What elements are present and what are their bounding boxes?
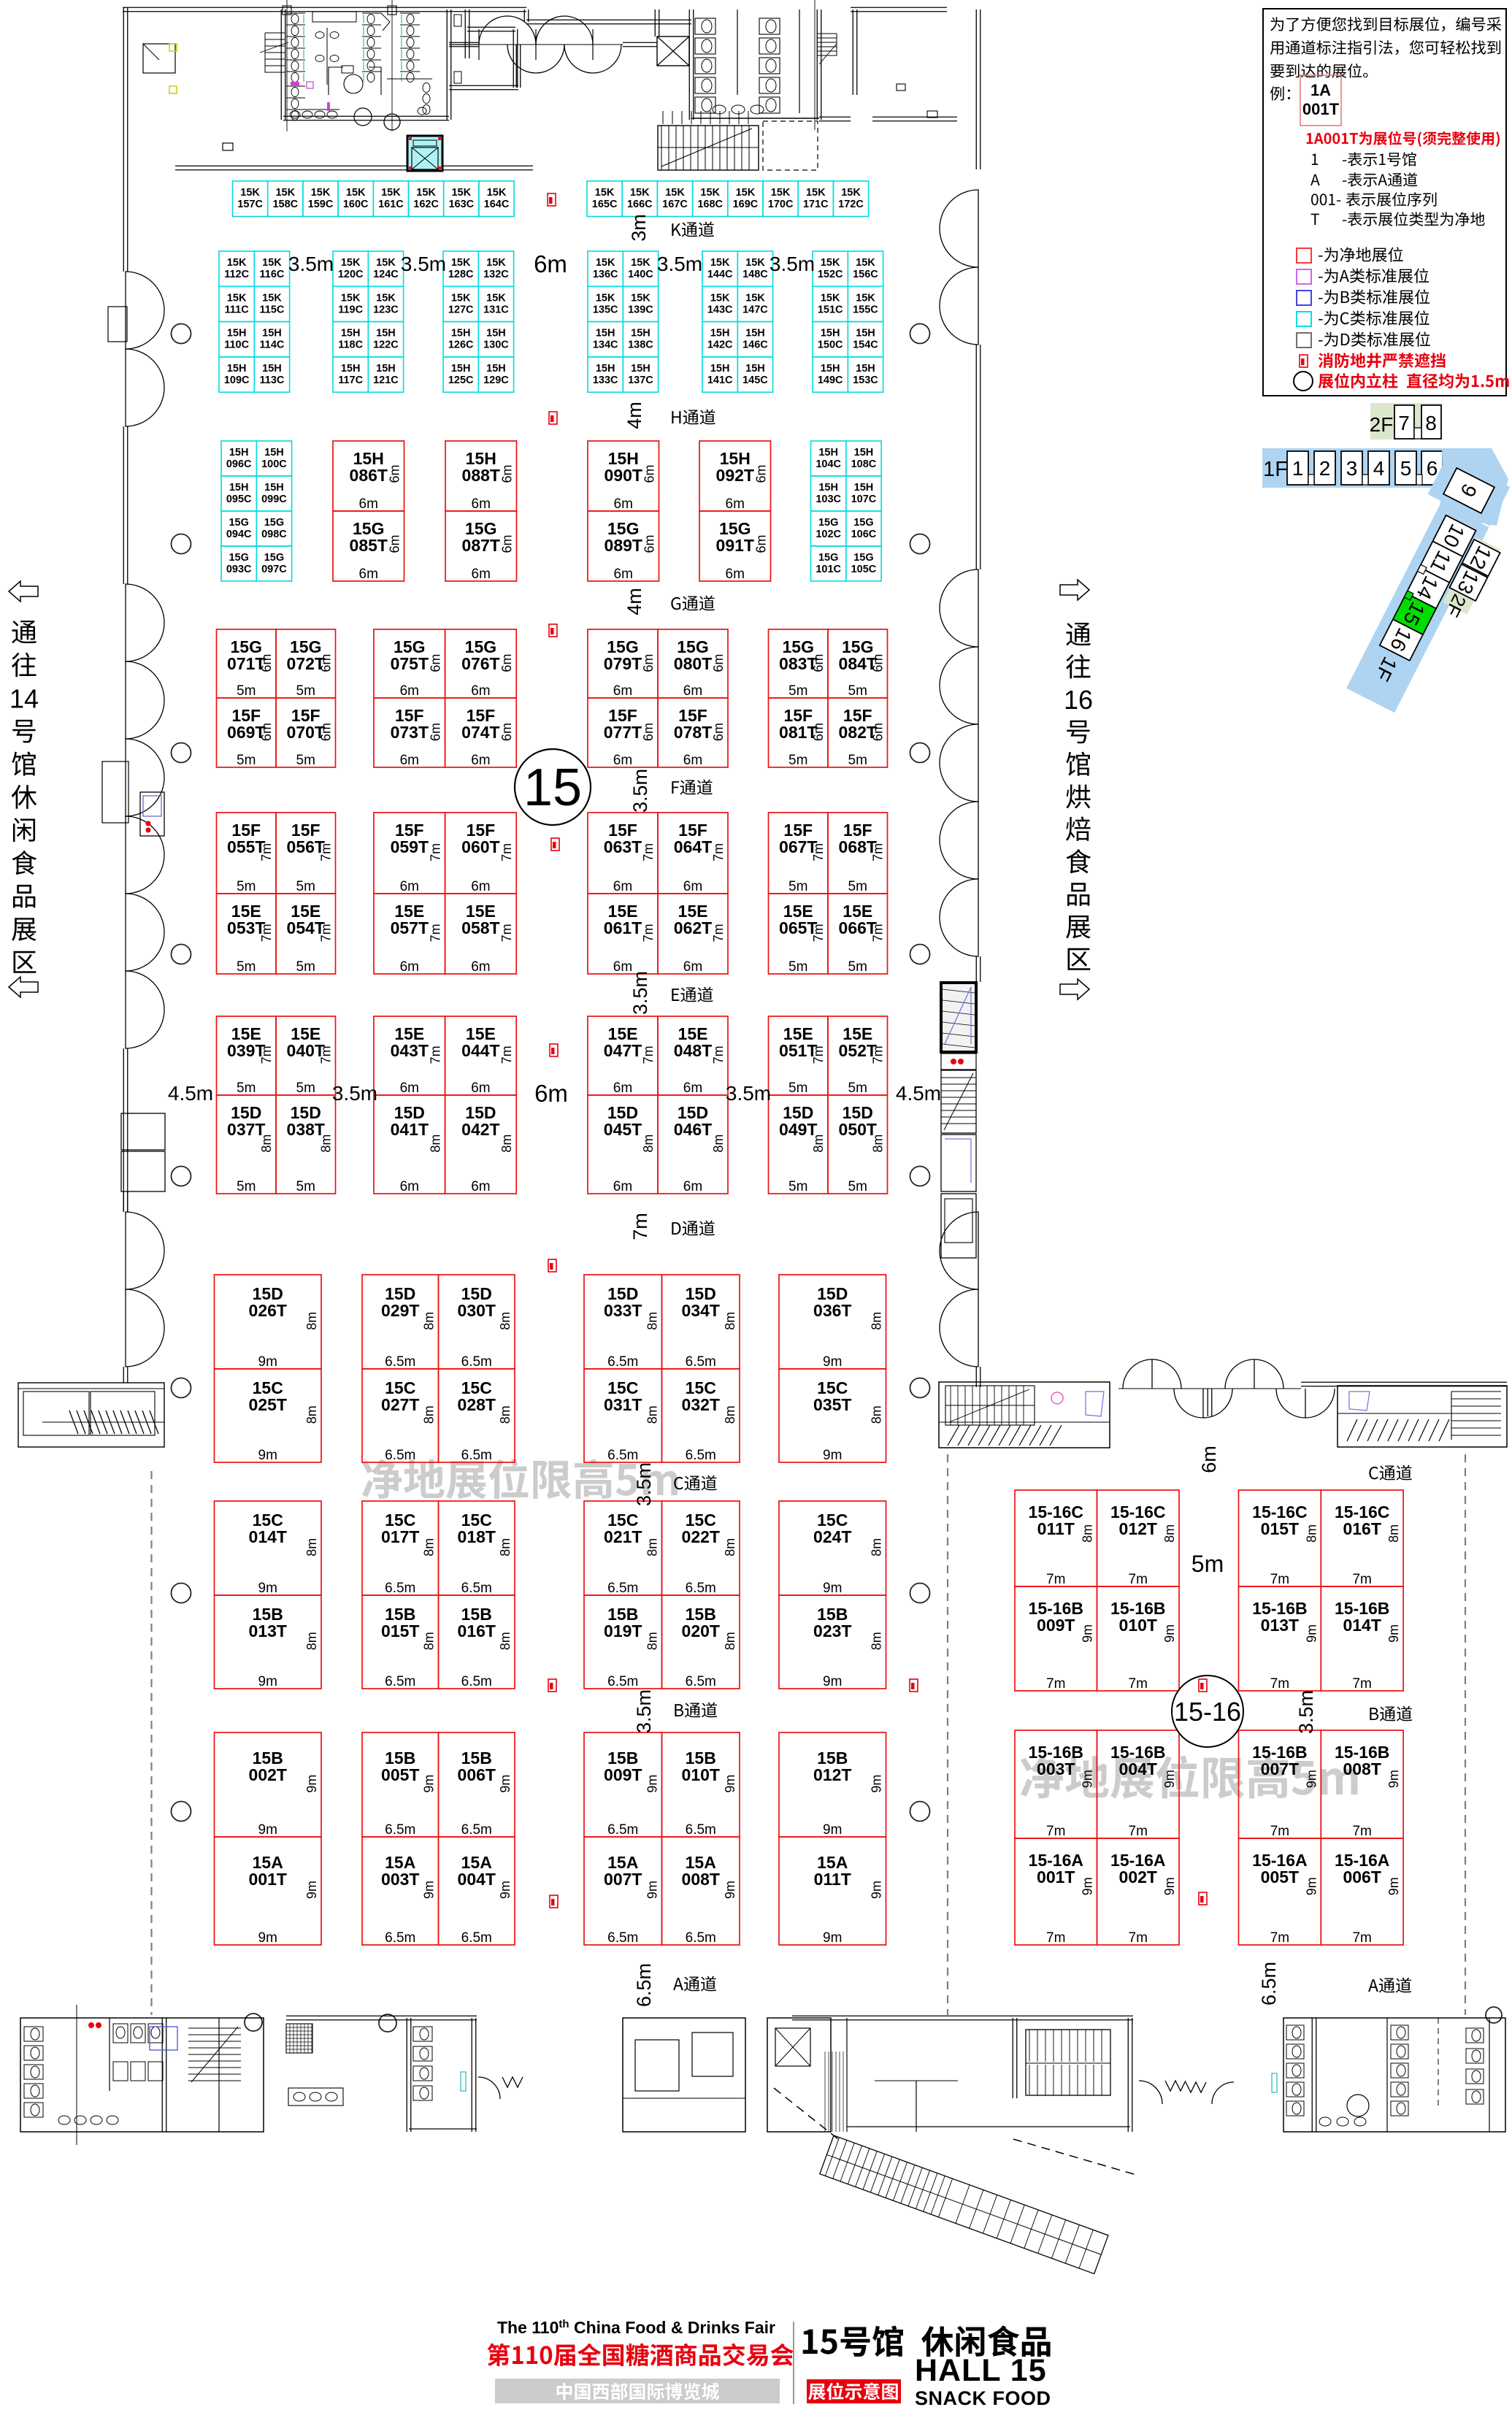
svg-text:9m: 9m [1081,1624,1095,1643]
svg-text:6m: 6m [472,496,491,512]
svg-text:019T: 019T [604,1621,642,1640]
svg-text:6m: 6m [1198,1446,1220,1473]
svg-text:5m: 5m [237,683,256,699]
svg-text:15H: 15H [451,363,471,375]
svg-text:7m: 7m [319,843,334,861]
svg-text:7m: 7m [1129,1572,1148,1587]
svg-text:113C: 113C [260,375,285,386]
svg-text:8m: 8m [870,1538,884,1557]
svg-text:086T: 086T [350,466,388,485]
svg-text:158C: 158C [272,199,298,210]
svg-text:5m: 5m [788,753,807,768]
svg-text:15H: 15H [227,328,247,339]
svg-text:15H: 15H [745,363,765,375]
svg-text:1A: 1A [1310,81,1331,99]
svg-text:15K: 15K [262,292,282,304]
svg-text:4m: 4m [623,588,645,615]
svg-text:142C: 142C [707,339,733,351]
svg-text:018T: 018T [458,1527,496,1546]
svg-text:16: 16 [1064,685,1093,715]
svg-text:117C: 117C [338,375,363,386]
svg-text:9m: 9m [498,1881,513,1899]
svg-text:15H: 15H [854,482,874,494]
svg-text:8m: 8m [645,1632,660,1650]
svg-text:7m: 7m [429,843,443,861]
svg-text:014T: 014T [1343,1616,1381,1635]
svg-text:6m: 6m [613,1179,632,1194]
svg-text:6m: 6m [642,534,657,553]
svg-text:148C: 148C [742,269,768,280]
svg-text:15K: 15K [710,257,730,269]
svg-text:15: 15 [523,759,582,817]
svg-text:6m: 6m [319,723,334,741]
svg-text:6m: 6m [726,496,745,512]
svg-text:6.5m: 6.5m [607,1930,638,1946]
svg-text:8m: 8m [304,1632,319,1650]
svg-text:6m: 6m [400,683,419,699]
svg-text:137C: 137C [628,375,653,386]
svg-text:8m: 8m [304,1405,319,1424]
svg-text:145C: 145C [742,375,768,386]
svg-text:6m: 6m [388,534,402,553]
svg-text:002T: 002T [1119,1868,1157,1887]
svg-text:15K: 15K [596,292,615,304]
svg-text:9m: 9m [1386,1877,1401,1895]
svg-text:093C: 093C [226,564,252,575]
svg-text:9m: 9m [258,1354,277,1370]
svg-text:012T: 012T [1119,1519,1157,1538]
svg-text:6m: 6m [641,723,656,741]
svg-text:3.5m: 3.5m [629,769,651,813]
svg-text:9m: 9m [823,1354,842,1370]
svg-text:15H: 15H [264,447,284,458]
svg-text:9m: 9m [1304,1624,1319,1643]
svg-text:6m: 6m [811,723,826,741]
svg-text:15H: 15H [262,328,282,339]
svg-text:3.5m: 3.5m [726,1082,771,1105]
svg-text:134C: 134C [593,339,618,351]
svg-text:5m: 5m [848,683,867,699]
svg-text:6m: 6m [754,534,769,553]
svg-text:15K: 15K [821,257,840,269]
svg-text:14: 14 [9,683,39,713]
svg-text:5m: 5m [848,1179,867,1194]
svg-text:9m: 9m [823,1448,842,1463]
svg-text:6m: 6m [683,1081,702,1096]
svg-text:6.5m: 6.5m [461,1930,492,1946]
svg-text:6m: 6m [683,753,702,768]
svg-text:6m: 6m [499,654,514,672]
svg-text:6.5m: 6.5m [633,1963,655,2007]
svg-text:7m: 7m [629,1213,651,1240]
svg-text:15K: 15K [381,187,401,199]
svg-text:041T: 041T [391,1120,429,1139]
svg-text:6.5m: 6.5m [461,1822,492,1838]
svg-text:7m: 7m [1046,1676,1065,1692]
svg-text:7m: 7m [811,1045,826,1064]
svg-text:101C: 101C [816,564,841,575]
svg-text:7m: 7m [711,843,726,861]
svg-text:9m: 9m [645,1881,660,1899]
svg-text:8m: 8m [723,1405,737,1424]
svg-text:6m: 6m [534,250,567,277]
svg-text:8m: 8m [723,1312,737,1330]
svg-text:9m: 9m [1162,1877,1177,1895]
svg-text:7m: 7m [429,1045,443,1064]
svg-text:15H: 15H [264,482,284,494]
svg-text:7m: 7m [871,1045,886,1064]
svg-text:043T: 043T [391,1041,429,1060]
svg-text:8m: 8m [1386,1524,1401,1543]
svg-text:008T: 008T [682,1870,720,1889]
svg-text:146C: 146C [742,339,768,351]
svg-text:9m: 9m [723,1881,737,1899]
svg-text:7m: 7m [259,843,274,861]
svg-text:009T: 009T [604,1765,642,1784]
svg-text:8m: 8m [1304,1524,1319,1543]
svg-text:7m: 7m [1270,1676,1289,1692]
svg-text:3.5m: 3.5m [1295,1690,1317,1734]
svg-text:3m: 3m [628,214,650,242]
svg-text:5m: 5m [788,959,807,975]
svg-text:15K: 15K [745,292,765,304]
svg-text:15-16: 15-16 [1174,1697,1241,1727]
svg-text:6m: 6m [259,723,274,741]
svg-text:003T: 003T [381,1870,419,1889]
svg-text:6.5m: 6.5m [461,1581,492,1596]
svg-text:6m: 6m [429,654,443,672]
svg-text:6m: 6m [400,753,419,768]
svg-text:144C: 144C [707,269,733,280]
svg-text:074T: 074T [461,723,499,742]
svg-text:8m: 8m [870,1632,884,1650]
svg-text:7m: 7m [871,843,886,861]
svg-text:15G: 15G [264,517,284,529]
svg-text:15K: 15K [275,187,295,199]
svg-text:098C: 098C [261,529,287,540]
svg-text:6m: 6m [472,567,491,582]
svg-text:6m: 6m [641,654,656,672]
svg-text:6m: 6m [811,654,826,672]
svg-text:15K: 15K [710,292,730,304]
svg-text:HALL 15: HALL 15 [915,2353,1047,2388]
svg-text:6.5m: 6.5m [461,1674,492,1689]
svg-text:5m: 5m [788,683,807,699]
svg-text:6m: 6m [614,496,633,512]
svg-text:9m: 9m [258,1674,277,1689]
svg-text:7m: 7m [499,1045,514,1064]
svg-text:15K: 15K [745,257,765,269]
svg-text:007T: 007T [604,1870,642,1889]
svg-text:005T: 005T [1261,1868,1299,1887]
svg-text:6m: 6m [871,654,886,672]
svg-text:3.5m: 3.5m [770,253,815,275]
svg-text:141C: 141C [707,375,733,386]
svg-text:15K: 15K [486,292,506,304]
svg-text:8m: 8m [422,1405,437,1424]
svg-text:6m: 6m [319,654,334,672]
svg-text:15H: 15H [341,328,361,339]
svg-text:15H: 15H [596,363,615,375]
svg-text:027T: 027T [381,1395,419,1414]
svg-text:6m: 6m [711,723,726,741]
svg-text:2F: 2F [1370,413,1394,436]
svg-text:013T: 013T [1261,1616,1299,1635]
svg-text:023T: 023T [813,1621,851,1640]
svg-text:6m: 6m [400,879,419,894]
svg-text:9m: 9m [1162,1770,1177,1788]
svg-text:5m: 5m [296,1179,315,1194]
svg-text:7m: 7m [1046,1930,1065,1946]
svg-text:045T: 045T [604,1120,642,1139]
svg-text:9m: 9m [258,1930,277,1946]
svg-text:15H: 15H [376,328,396,339]
svg-text:6m: 6m [871,723,886,741]
svg-text:116C: 116C [260,269,285,280]
svg-text:9m: 9m [823,1581,842,1596]
svg-text:15G: 15G [853,517,873,529]
svg-text:032T: 032T [682,1395,720,1414]
svg-text:15H: 15H [745,328,765,339]
svg-text:15H: 15H [710,328,730,339]
svg-text:15K: 15K [700,187,720,199]
svg-text:6m: 6m [359,496,378,512]
svg-text:15K: 15K [487,187,507,199]
svg-text:016T: 016T [458,1621,496,1640]
svg-text:6m: 6m [259,654,274,672]
svg-text:017T: 017T [381,1527,419,1546]
svg-text:9m: 9m [1162,1624,1177,1643]
svg-text:6.5m: 6.5m [385,1930,415,1946]
svg-text:7m: 7m [711,924,726,942]
svg-text:004T: 004T [458,1870,496,1889]
svg-text:8m: 8m [259,1135,274,1153]
svg-text:5m: 5m [237,879,256,894]
svg-text:132C: 132C [483,269,509,280]
svg-text:091T: 091T [716,536,754,555]
svg-text:7m: 7m [811,924,826,942]
svg-text:108C: 108C [851,458,877,470]
svg-text:102C: 102C [816,529,841,540]
svg-text:15K: 15K [227,292,247,304]
svg-text:9m: 9m [723,1775,737,1793]
svg-text:6m: 6m [400,959,419,975]
svg-text:8m: 8m [870,1405,884,1424]
svg-text:7m: 7m [1046,1824,1065,1839]
svg-text:6m: 6m [613,753,632,768]
svg-text:8m: 8m [1081,1524,1095,1543]
svg-text:143C: 143C [707,304,733,315]
svg-text:15H: 15H [227,363,247,375]
svg-text:3.5m: 3.5m [657,253,702,275]
svg-text:079T: 079T [604,654,642,673]
svg-text:114C: 114C [260,339,285,351]
svg-text:6m: 6m [471,959,490,975]
svg-text:047T: 047T [604,1041,642,1060]
svg-text:7m: 7m [1129,1824,1148,1839]
svg-text:6m: 6m [500,534,515,553]
svg-text:15H: 15H [376,363,396,375]
svg-text:5m: 5m [296,879,315,894]
svg-text:5m: 5m [788,1179,807,1194]
svg-text:127C: 127C [448,304,474,315]
svg-text:7m: 7m [641,1045,656,1064]
svg-text:8m: 8m [304,1538,319,1557]
svg-text:15K: 15K [376,257,396,269]
svg-text:3.5m: 3.5m [288,253,334,275]
svg-text:172C: 172C [838,199,864,210]
svg-text:15G: 15G [229,517,248,529]
svg-text:6.5m: 6.5m [686,1354,716,1370]
svg-text:5m: 5m [296,959,315,975]
svg-text:7m: 7m [1352,1676,1371,1692]
svg-text:009T: 009T [1037,1616,1075,1635]
svg-text:15K: 15K [595,187,615,199]
svg-text:15H: 15H [229,482,249,494]
svg-text:7m: 7m [641,843,656,861]
svg-text:9m: 9m [1081,1770,1095,1788]
svg-text:6m: 6m [534,1080,568,1107]
svg-text:15K: 15K [821,292,840,304]
svg-text:8m: 8m [429,1135,443,1153]
svg-text:028T: 028T [458,1395,496,1414]
svg-text:9m: 9m [823,1674,842,1689]
svg-text:7m: 7m [259,924,274,942]
svg-text:6.5m: 6.5m [607,1674,638,1689]
svg-text:155C: 155C [853,304,878,315]
svg-text:6m: 6m [683,1179,702,1194]
svg-text:6m: 6m [471,879,490,894]
svg-text:The 110th China Food & Drinks: The 110th China Food & Drinks Fair [497,2318,775,2338]
svg-text:6m: 6m [614,567,633,582]
svg-text:048T: 048T [674,1041,712,1060]
svg-text:061T: 061T [604,918,642,937]
svg-text:6m: 6m [471,753,490,768]
svg-text:6.5m: 6.5m [686,1448,716,1463]
svg-text:011T: 011T [814,1870,851,1889]
svg-text:5m: 5m [848,959,867,975]
svg-text:157C: 157C [237,199,263,210]
svg-text:001T: 001T [1037,1868,1075,1887]
svg-text:060T: 060T [461,837,499,856]
svg-text:170C: 170C [768,199,794,210]
svg-text:9m: 9m [1386,1624,1401,1643]
svg-text:088T: 088T [462,466,500,485]
svg-text:15G: 15G [264,552,284,564]
svg-text:15H: 15H [229,447,249,458]
svg-text:9m: 9m [258,1448,277,1463]
svg-text:7m: 7m [711,1045,726,1064]
svg-text:9m: 9m [1386,1770,1401,1788]
svg-text:4: 4 [1373,457,1385,480]
svg-text:15K: 15K [631,257,651,269]
svg-text:014T: 014T [249,1527,287,1546]
svg-text:168C: 168C [697,199,723,210]
svg-text:022T: 022T [682,1527,720,1546]
svg-text:2: 2 [1319,457,1331,480]
svg-text:6m: 6m [613,683,632,699]
svg-text:15G: 15G [818,552,838,564]
svg-text:9m: 9m [823,1822,842,1838]
svg-text:6m: 6m [359,567,378,582]
svg-text:164C: 164C [484,199,510,210]
svg-text:15K: 15K [451,292,471,304]
svg-text:15K: 15K [806,187,826,199]
svg-text:6.5m: 6.5m [461,1354,492,1370]
svg-text:078T: 078T [674,723,712,742]
svg-text:6m: 6m [642,464,657,483]
svg-text:15K: 15K [486,257,506,269]
svg-text:6m: 6m [683,683,702,699]
svg-text:15K: 15K [856,257,875,269]
svg-text:15G: 15G [229,552,248,564]
svg-text:128C: 128C [448,269,474,280]
svg-text:1F: 1F [1263,458,1288,481]
svg-text:15H: 15H [818,447,838,458]
svg-text:7m: 7m [1352,1930,1371,1946]
svg-text:112C: 112C [224,269,249,280]
svg-text:010T: 010T [682,1765,720,1784]
svg-text:15K: 15K [341,292,361,304]
svg-text:15K: 15K [227,257,247,269]
svg-text:15K: 15K [630,187,650,199]
svg-text:15H: 15H [854,447,874,458]
svg-text:162C: 162C [413,199,439,210]
svg-text:089T: 089T [605,536,642,555]
svg-text:9m: 9m [304,1881,319,1899]
svg-text:15H: 15H [710,363,730,375]
svg-text:5m: 5m [237,959,256,975]
svg-text:6m: 6m [400,1179,419,1194]
svg-text:8m: 8m [711,1135,726,1153]
svg-text:130C: 130C [483,339,509,351]
svg-text:6.5m: 6.5m [385,1354,415,1370]
svg-text:104C: 104C [816,458,841,470]
svg-text:8m: 8m [498,1405,513,1424]
svg-text:087T: 087T [462,536,500,555]
svg-text:059T: 059T [391,837,429,856]
svg-text:8m: 8m [319,1135,334,1153]
svg-text:167C: 167C [662,199,688,210]
svg-text:15H: 15H [856,328,875,339]
svg-text:036T: 036T [813,1301,851,1320]
svg-text:005T: 005T [381,1765,419,1784]
svg-text:15H: 15H [631,363,651,375]
svg-text:15K: 15K [736,187,756,199]
svg-text:149C: 149C [818,375,843,386]
svg-text:7m: 7m [1270,1572,1289,1587]
svg-text:152C: 152C [818,269,843,280]
svg-text:115C: 115C [260,304,285,315]
svg-text:150C: 150C [818,339,843,351]
svg-text:5m: 5m [1191,1551,1224,1577]
svg-text:6.5m: 6.5m [607,1822,638,1838]
svg-text:7m: 7m [259,1045,274,1064]
svg-text:15K: 15K [376,292,396,304]
svg-text:126C: 126C [448,339,474,351]
svg-text:044T: 044T [461,1041,499,1060]
svg-text:077T: 077T [604,723,642,742]
svg-text:123C: 123C [373,304,399,315]
svg-text:9m: 9m [1304,1877,1319,1895]
svg-text:3.5m: 3.5m [401,253,446,275]
svg-text:135C: 135C [593,304,618,315]
svg-text:063T: 063T [604,837,642,856]
svg-text:099C: 099C [261,494,287,505]
svg-text:001T: 001T [249,1870,287,1889]
svg-text:124C: 124C [373,269,399,280]
svg-text:6.5m: 6.5m [607,1581,638,1596]
